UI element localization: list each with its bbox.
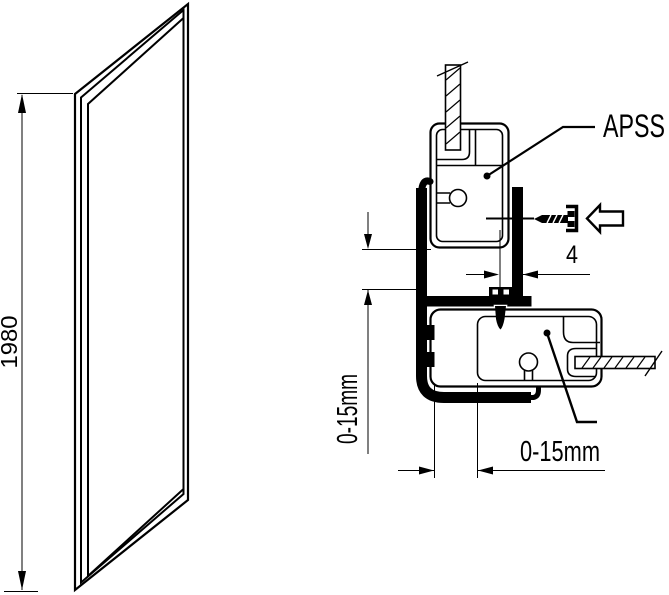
panel-height-label: 1980 [0, 316, 22, 369]
leader-dot [484, 173, 491, 180]
screw-channel-hole [450, 190, 467, 207]
glass-panel-front-view [75, 4, 188, 590]
installation-diagram: 1980 [0, 0, 669, 595]
leader-dot-2 [544, 330, 551, 337]
height-dimension: 1980 [0, 94, 73, 592]
screw-channel-hole-2 [520, 353, 538, 371]
screw-gap-dimension: 4 [466, 230, 590, 288]
diagram-canvas: 1980 [0, 0, 669, 595]
screw-gap-label: 4 [566, 241, 578, 269]
insert-direction-arrow-icon [587, 205, 623, 232]
clip-bottom-view [489, 287, 514, 297]
dimension-arrow-down-icon [18, 571, 26, 590]
glass-pane-hatched-top [437, 62, 468, 150]
apss-callout: APSS [484, 108, 666, 180]
profile-middle-flange [416, 296, 532, 307]
glass-pane-hatched-right [575, 351, 662, 376]
vertical-adjustment-label: 0-15mm [332, 374, 364, 444]
dimension-arrow-up-icon [18, 94, 26, 113]
horizontal-adjustment-label: 0-15mm [520, 436, 600, 468]
lower-profile-section [431, 310, 602, 387]
profile-front-flange [512, 187, 523, 297]
apss-label: APSS [603, 108, 665, 144]
anchor-screw-icon [534, 207, 577, 231]
